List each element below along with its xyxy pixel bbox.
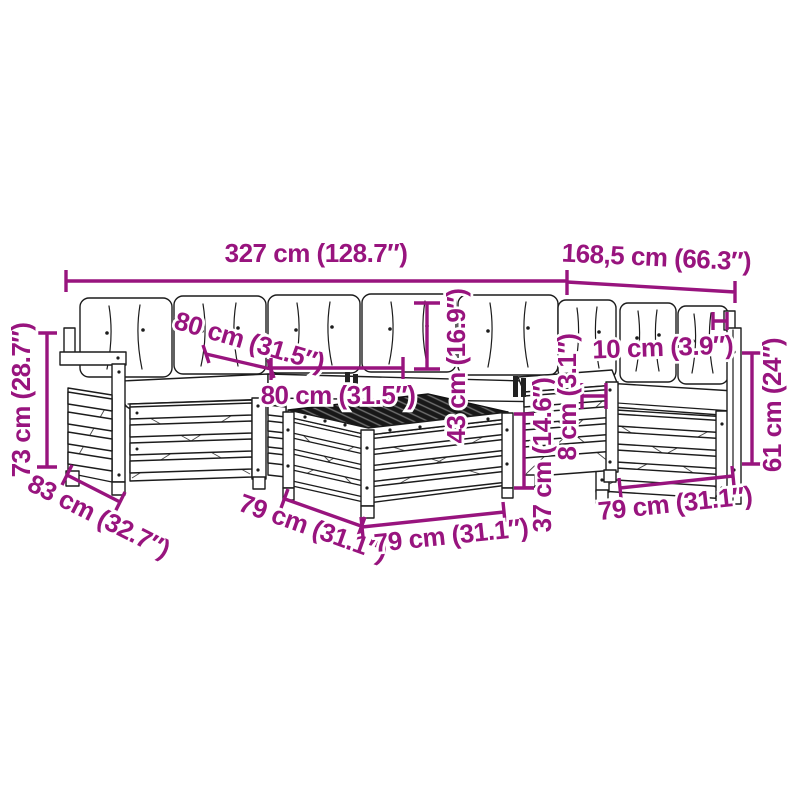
diagram-svg: 327 cm (128.7″) 168,5 cm (66.3″) 80 cm (… xyxy=(0,0,800,800)
dimension-overall-height: 73 cm (28.7″) xyxy=(6,323,57,478)
dim-label: 168,5 cm (66.3″) xyxy=(561,238,752,277)
dimension-table-width: 79 cm (31.1″) xyxy=(361,502,530,558)
product-dimension-diagram: 327 cm (128.7″) 168,5 cm (66.3″) 80 cm (… xyxy=(0,0,800,800)
dim-label: 83 cm (32.7″) xyxy=(23,468,175,564)
dim-label: 80 cm (31.5″) xyxy=(261,380,416,410)
dim-label: 327 cm (128.7″) xyxy=(225,238,408,268)
dimension-side-height: 61 cm (24″) xyxy=(742,338,787,472)
dim-label: 8 cm (3.1″) xyxy=(552,334,582,461)
dim-label: 43 cm (16.9″) xyxy=(441,289,471,444)
dim-label: 61 cm (24″) xyxy=(757,338,787,472)
dim-label: 73 cm (28.7″) xyxy=(6,323,36,478)
dimension-total-width-right: 168,5 cm (66.3″) xyxy=(561,238,752,303)
dim-label: 10 cm (3.9″) xyxy=(592,330,734,365)
dimension-total-width-left: 327 cm (128.7″) xyxy=(66,238,567,295)
slatted-table xyxy=(283,394,513,518)
